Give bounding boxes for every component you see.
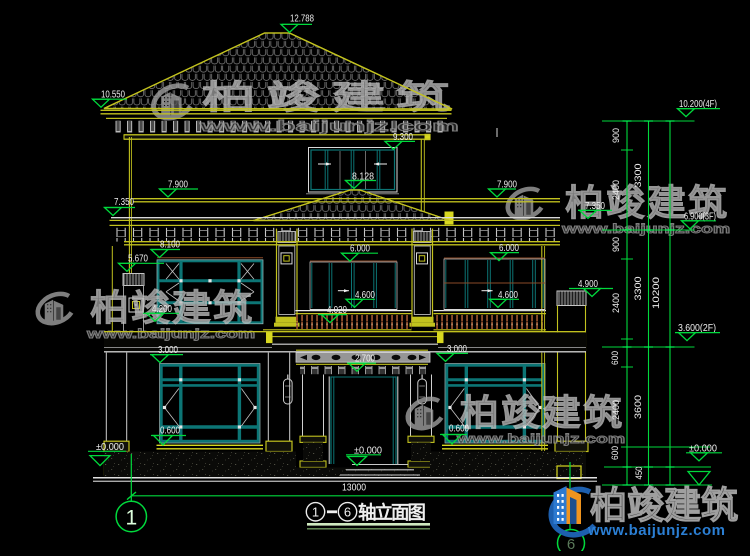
svg-text:12.788: 12.788 (290, 14, 314, 25)
svg-text:2400: 2400 (611, 293, 622, 313)
svg-text:2400: 2400 (611, 180, 622, 200)
svg-text:2400: 2400 (611, 400, 622, 420)
svg-text:柏竣建筑: 柏竣建筑 (590, 484, 738, 526)
svg-text:0.600: 0.600 (160, 425, 180, 436)
svg-text:www.baijunjz.com: www.baijunjz.com (456, 431, 625, 446)
svg-text:www.baijunjz.com: www.baijunjz.com (86, 326, 255, 341)
svg-text:3300: 3300 (633, 164, 644, 188)
svg-text:轴立面图: 轴立面图 (358, 502, 426, 523)
svg-text:600: 600 (610, 351, 621, 365)
svg-text:10200: 10200 (651, 277, 662, 309)
svg-text:450: 450 (634, 467, 645, 480)
svg-text:600: 600 (610, 446, 621, 460)
svg-text:0.600: 0.600 (449, 424, 469, 435)
svg-text:3300: 3300 (633, 277, 644, 301)
svg-text:3600: 3600 (633, 395, 644, 419)
svg-text:6: 6 (344, 504, 351, 519)
svg-text:7.350: 7.350 (114, 197, 134, 208)
svg-text:1: 1 (312, 504, 319, 519)
svg-text:www.baijunjz.com: www.baijunjz.com (587, 522, 725, 539)
svg-text:1: 1 (125, 507, 137, 530)
svg-text:www.baijunjz.com: www.baijunjz.com (561, 221, 730, 236)
svg-text:柏竣建筑: 柏竣建筑 (460, 392, 624, 432)
svg-text:900: 900 (611, 128, 622, 143)
svg-text:13000: 13000 (342, 482, 366, 494)
svg-text:900: 900 (611, 237, 622, 252)
svg-text:www.baijunjz.com: www.baijunjz.com (199, 118, 459, 134)
svg-text:柏竣建筑: 柏竣建筑 (90, 287, 254, 327)
svg-text:6: 6 (567, 536, 575, 551)
